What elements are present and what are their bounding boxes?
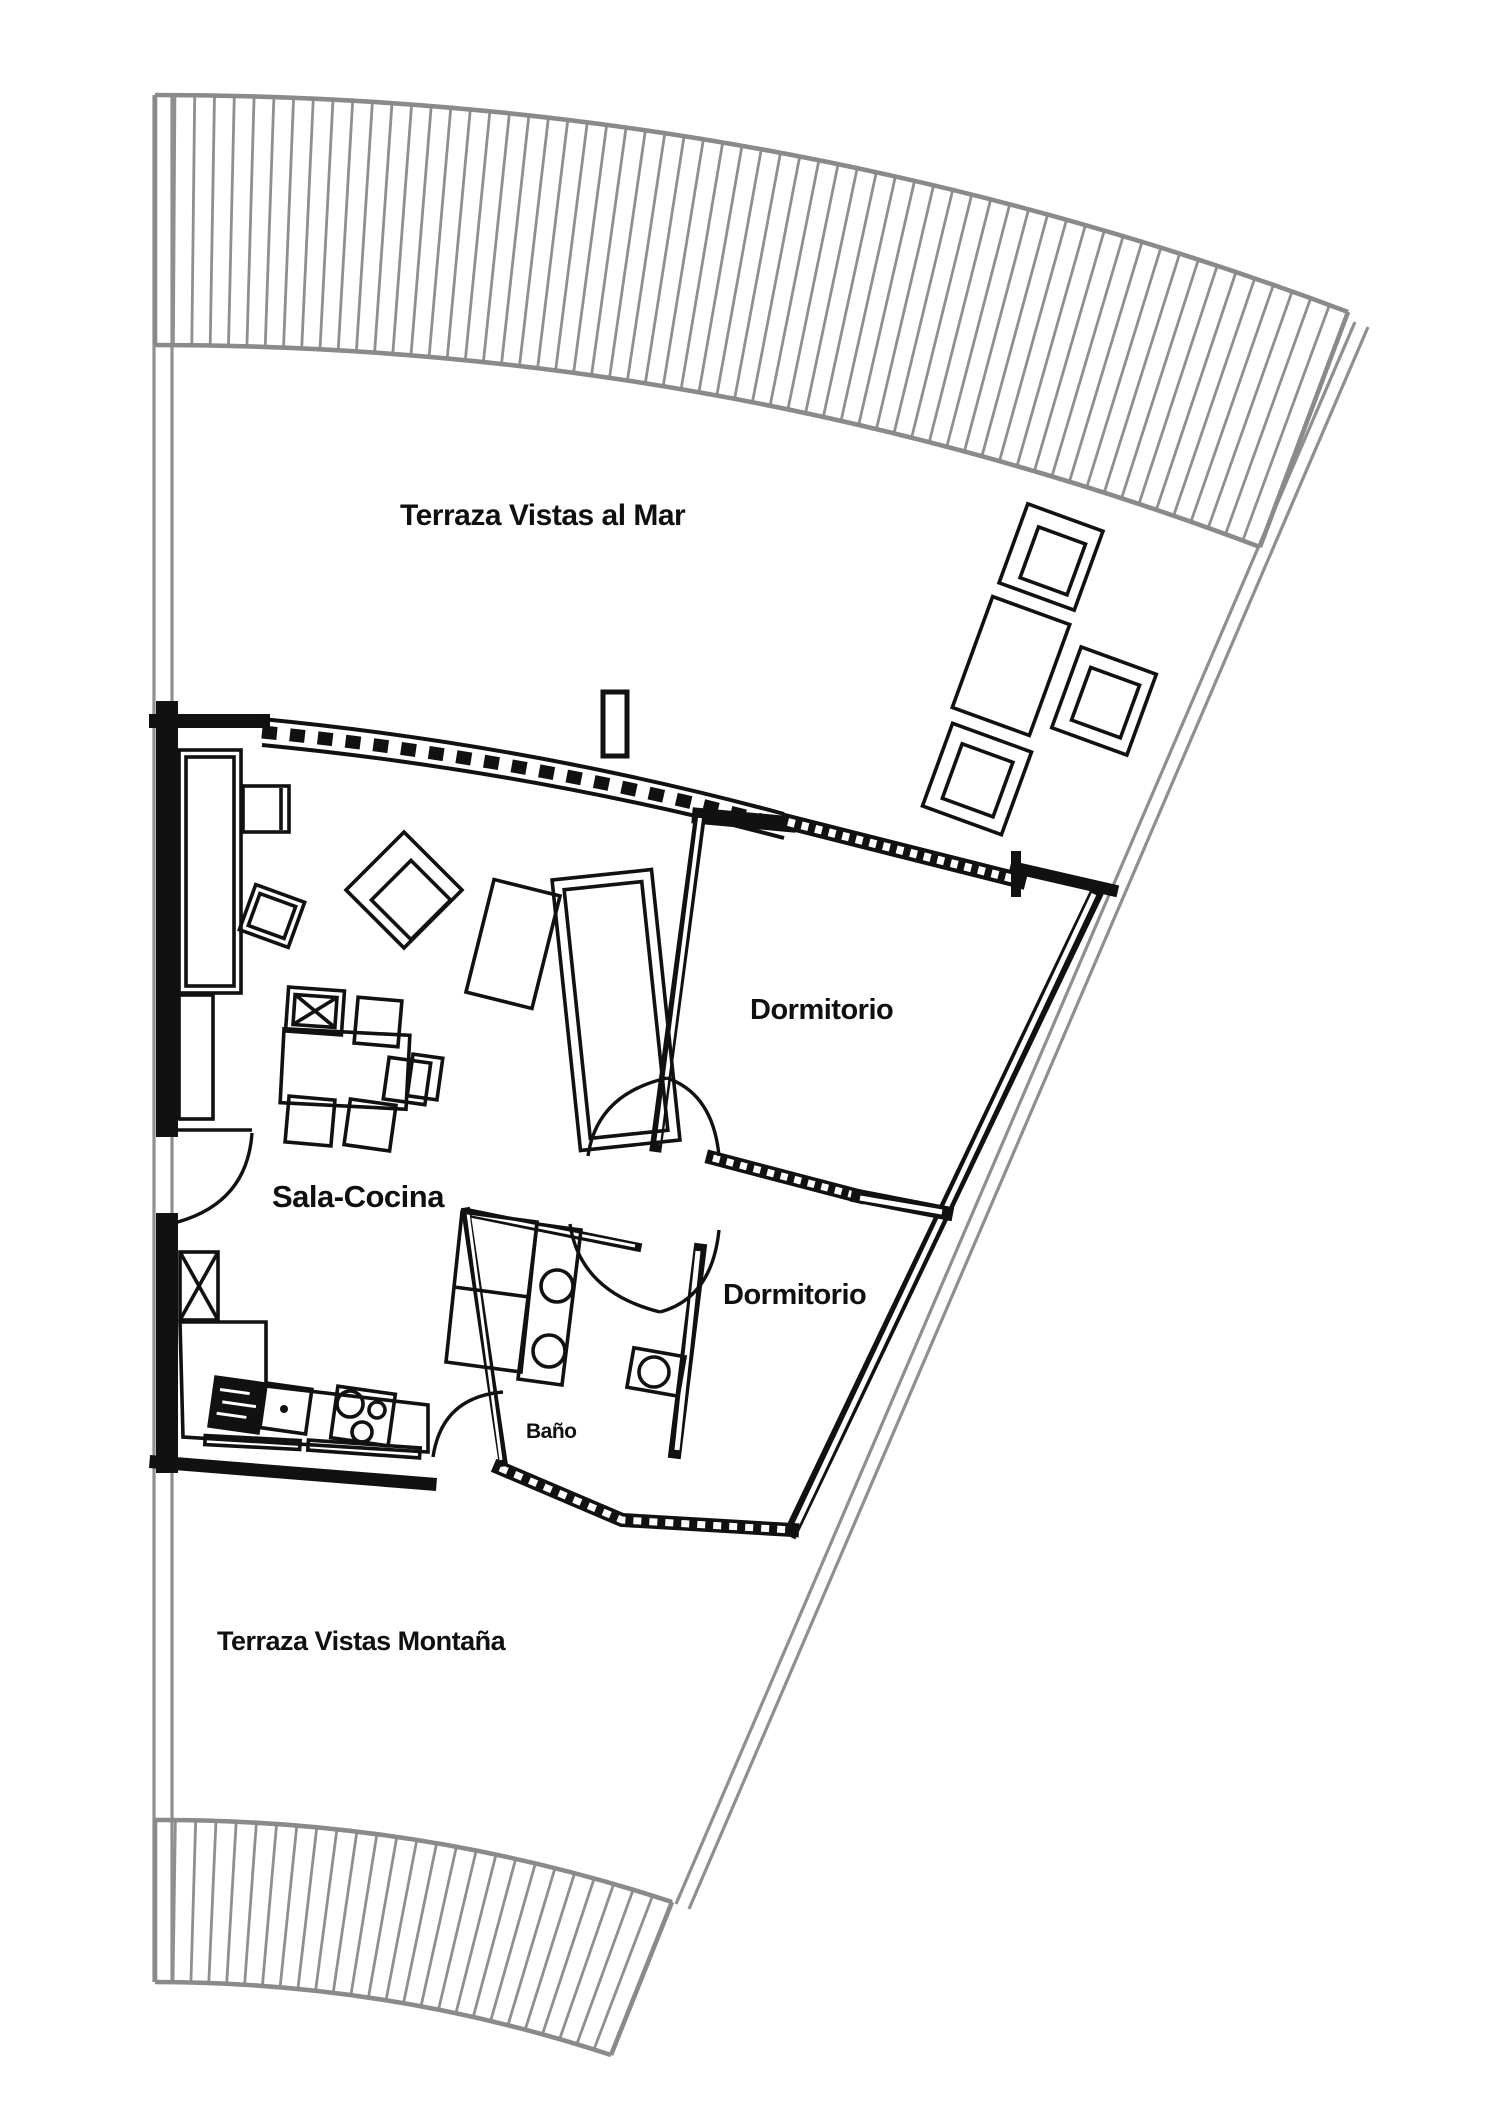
dining-set [280,997,443,1151]
site-boundary-right-inner-line [689,327,1368,1909]
living-room-furniture [179,750,680,1320]
vanity-counter [518,1224,581,1385]
divider-bedroom2-bath-core [677,1251,698,1450]
kitchen-fixtures [180,1322,428,1458]
sideboard-inner [186,757,234,986]
dining-chair-top [354,997,402,1047]
console-table [466,879,560,1008]
label-bedroom-mid: Dormitorio [723,1279,866,1311]
bottom-wall-kitchen [156,1462,430,1484]
terrace-chair-3-frame [922,723,1031,834]
armchair-cushion [248,894,295,939]
sink-faucet [280,1405,288,1413]
terrace-chair-3 [922,723,1031,834]
terrace-table [952,597,1069,736]
sea-pergola-hatch-lines [155,95,1348,547]
stove-burner-small [369,1402,385,1418]
sea-pergola-band [155,95,1348,547]
sea-pergola-inner-edge [155,345,1260,547]
bath-top-wall-core [472,1214,635,1246]
shaft-box [180,1252,218,1320]
mountain-pergola-band [155,1820,672,2055]
terrace-chair-2 [1052,647,1157,755]
label-bathroom: Baño [526,1420,577,1443]
label-terrace-mountain: Terraza Vistas Montaña [217,1626,507,1656]
shower-divider [454,1287,529,1297]
sea-pergola-hatch-path [155,95,1348,547]
window-pier-wall [700,816,788,824]
stove [331,1386,396,1446]
bath-left-wall-core [468,1213,501,1460]
counter-low [179,995,213,1119]
bottom-wall-bath-bed2 [500,1468,792,1530]
label-living-kitchen: Sala-Cocina [272,1179,445,1214]
terrace-chair-1 [999,504,1103,610]
room-labels: Terraza Vistas al Mar Dormitorio Sala-Co… [217,499,893,1656]
armchair [239,885,304,948]
floor-plan-page: Terraza Vistas al Mar Dormitorio Sala-Co… [0,0,1500,2122]
toilet-bowl [639,1357,669,1387]
terrace-chair-2-cushion [1072,667,1140,737]
site-boundary-right-outer-line [676,322,1355,1904]
mountain-pergola-hatch-lines [155,1820,672,2055]
wash-basin-1 [541,1270,573,1302]
window-column [603,692,627,756]
kitchen-sink [209,1377,265,1433]
floor-plan-drawing: Terraza Vistas al Mar Dormitorio Sala-Co… [0,0,1500,2122]
terrace-furniture [922,504,1156,835]
site-boundary [154,95,1368,1982]
terrace-chair-1-cushion [1020,527,1085,595]
label-bedroom-top: Dormitorio [750,994,893,1026]
wash-basin-2 [533,1335,565,1367]
stove-burner-mid [352,1422,372,1442]
mountain-pergola-inner-edge [155,1982,611,2055]
terrace-chair-1-frame [999,504,1103,610]
apartment-walls [156,692,1112,1530]
sideboard [179,750,241,993]
mountain-pergola-hatch-path [155,1820,672,2055]
terrace-chair-3-cushion [942,744,1013,817]
armchair-frame [239,885,304,948]
label-terrace-sea: Terraza Vistas al Mar [400,499,686,532]
terrace-chair-2-frame [1052,647,1157,755]
entrance-door-arc [170,1133,252,1224]
